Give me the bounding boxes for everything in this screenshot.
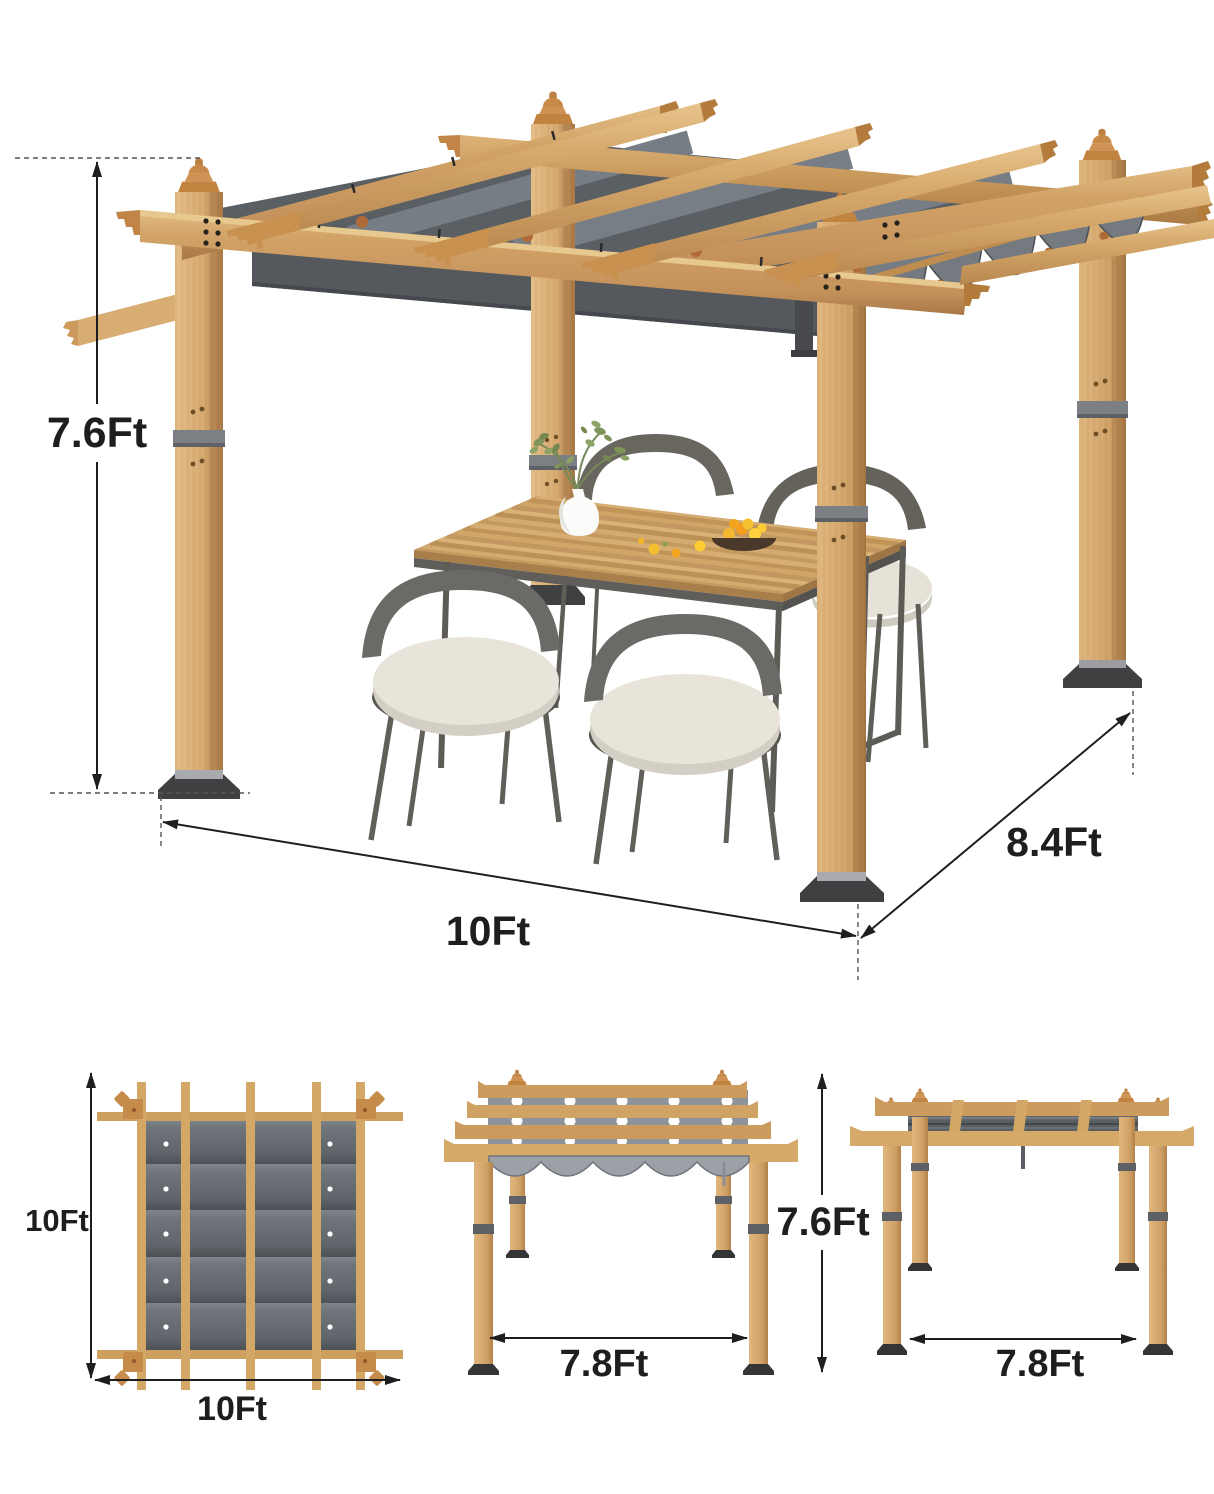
- svg-text:7.8Ft: 7.8Ft: [560, 1343, 649, 1385]
- svg-text:10Ft: 10Ft: [25, 1203, 89, 1238]
- svg-text:8.4Ft: 8.4Ft: [1006, 819, 1102, 865]
- svg-text:7.6Ft: 7.6Ft: [47, 409, 147, 457]
- svg-text:10Ft: 10Ft: [446, 908, 531, 954]
- svg-text:7.6Ft: 7.6Ft: [776, 1200, 869, 1244]
- svg-text:7.8Ft: 7.8Ft: [996, 1343, 1085, 1385]
- svg-text:10Ft: 10Ft: [197, 1390, 267, 1428]
